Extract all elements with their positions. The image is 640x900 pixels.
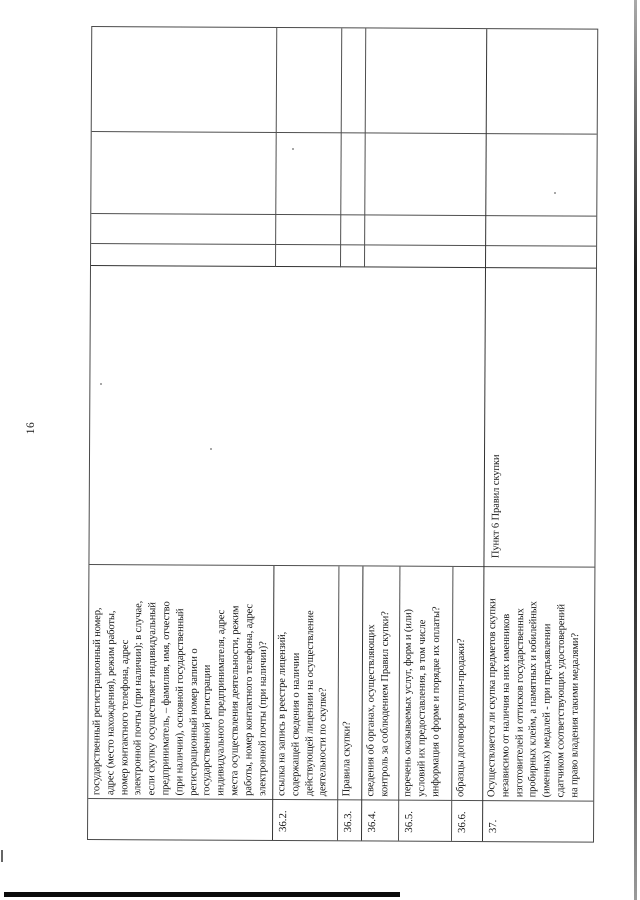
scan-edge-artifact [634,0,637,900]
checklist-table: 36.2. 36.3. 36.4. 36.5. 36.6. 37. госуда… [87,26,598,843]
scanned-page: 16 36.2. 36.3. 36.4. 36.5. 3 [0,0,640,900]
table-grid-line [91,265,596,269]
question-cell: сведения об органах, осуществляющих конт… [362,566,399,799]
table-grid-line [340,28,342,267]
scan-edge-artifact [4,892,400,897]
table-grid-line [91,243,596,247]
row-number-cell: 37. [483,801,593,842]
question-cell: государственный регистрационный номер, а… [88,565,273,799]
question-cell: ссылка на запись в реестре лицензий, сод… [273,566,338,799]
row-number-cell: 36.2. [273,800,337,840]
row-number-cell: 36.4. [362,800,398,840]
scan-speck [210,448,212,450]
question-cell: перечень оказываемых услуг, форм и (или)… [399,567,452,800]
table-grid-line [275,28,277,267]
question-cell: Правила скупки? [338,566,362,799]
scan-speck [292,148,294,150]
question-cell: образцы договоров купли-продажи? [452,567,483,800]
scan-edge-artifact [1,850,3,862]
question-cell: Осуществляется ли скупка предметов скупк… [483,567,594,801]
scanned-document-screenshot: 16 36.2. 36.3. 36.4. 36.5. 3 [0,0,640,900]
scan-speck [554,192,556,194]
reference-cell: Пункт 6 Правил скупки [484,269,596,567]
table-grid-line [92,131,597,135]
scan-speck [100,383,102,385]
page-number: 16 [25,396,37,460]
row-number-cell: 36.6. [452,801,482,841]
row-number-cell: 36.3. [338,800,361,840]
row-number-cell: 36.5. [399,801,451,841]
table-grid-line [91,213,596,217]
table-grid-line [364,28,366,267]
row-number-cell [88,799,272,840]
